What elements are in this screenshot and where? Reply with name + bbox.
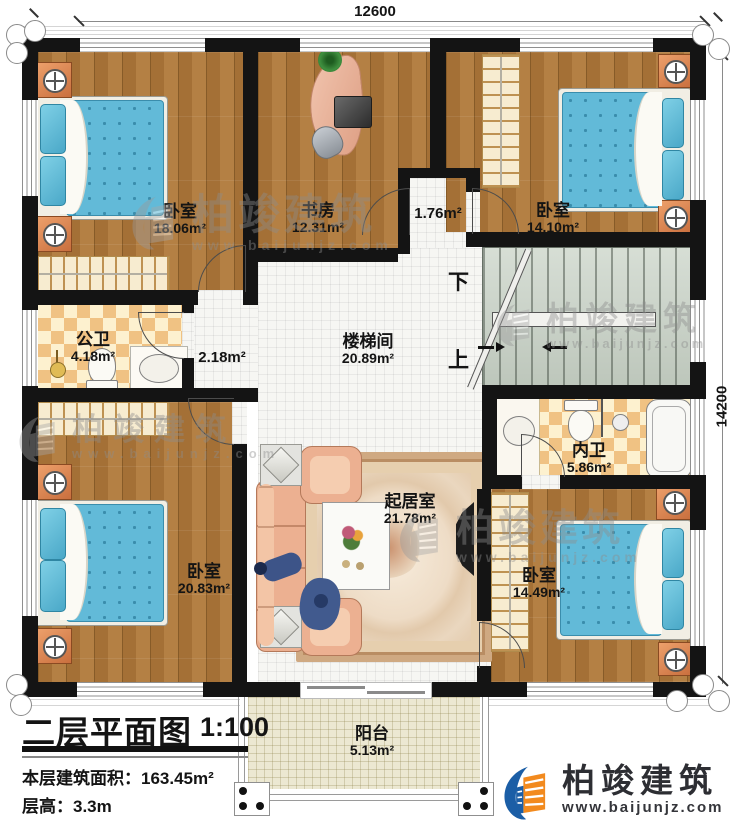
pillow	[662, 580, 684, 630]
floor-area-line: 本层建筑面积：163.45m²	[22, 764, 214, 789]
side-table-decor	[263, 447, 300, 484]
stairs-up-label: 上	[448, 344, 469, 374]
column-dot	[239, 787, 247, 795]
column-marker-left	[234, 782, 270, 816]
window	[300, 38, 430, 52]
room-area: 20.89m²	[308, 351, 428, 367]
room-name: 起居室	[350, 492, 470, 511]
room-label-balcony: 阳台 5.13m²	[312, 724, 432, 759]
axis-tick	[713, 12, 723, 22]
window	[22, 500, 38, 616]
wall-living-bedroombr	[477, 666, 491, 682]
room-name: 书房	[258, 201, 378, 220]
room-area: 4.18m²	[33, 349, 153, 365]
room-area: 5.86m²	[529, 460, 649, 476]
window	[520, 38, 653, 52]
blanket	[634, 524, 662, 634]
balcony-railing	[238, 794, 489, 795]
pillow	[40, 560, 66, 612]
drawing-scale: 1:100	[200, 712, 269, 743]
lamp-icon	[43, 471, 67, 495]
monitor-icon	[334, 96, 372, 128]
floor-area-value: 163.45m²	[141, 769, 214, 788]
column-dot	[480, 802, 488, 810]
room-label-hall-upper: 1.76m²	[378, 206, 498, 223]
dimension-top-line	[78, 21, 706, 22]
nightstand	[36, 464, 72, 500]
brand-text: 柏竣建筑 www.baijunjz.com	[562, 764, 723, 816]
stair-arrow-dash	[551, 346, 567, 349]
stair-arrow-dash	[478, 346, 494, 349]
lamp-icon	[43, 69, 67, 93]
wardrobe-bedroom-tr	[482, 54, 520, 188]
room-label-living-room: 起居室 21.78m²	[350, 492, 470, 527]
dimension-tick	[717, 675, 728, 686]
sill-line	[22, 26, 706, 27]
brand-url: www.baijunjz.com	[562, 799, 723, 816]
room-area: 14.49m²	[479, 585, 599, 601]
wall-below-bedroomtl	[22, 290, 198, 305]
room-name: 卧室	[144, 562, 264, 581]
lamp-icon	[664, 60, 688, 84]
axis-bubble	[6, 42, 28, 64]
room-label-stairwell: 楼梯间 20.89m²	[308, 332, 428, 367]
pillow	[40, 508, 66, 560]
room-area: 2.18m²	[162, 350, 282, 367]
wall-innerbath-bottom	[560, 475, 706, 489]
title-underline-thick	[22, 746, 248, 752]
title-underline-thin	[22, 756, 248, 758]
room-area: 20.83m²	[144, 581, 264, 597]
wall-innerbath-left	[482, 385, 497, 489]
balcony-railing	[238, 800, 489, 801]
brand-name: 柏竣建筑	[562, 764, 723, 799]
column-dot	[256, 802, 264, 810]
side-table-top	[260, 444, 302, 486]
dimension-right-label: 14200	[714, 382, 731, 432]
axis-bubble	[708, 690, 730, 712]
floor-plan: 12600 14200 下 上	[0, 0, 750, 833]
window	[77, 682, 203, 697]
stair-handrail	[492, 312, 656, 327]
nightstand	[36, 62, 72, 98]
armchair-seat	[310, 456, 350, 494]
eave-line	[10, 699, 240, 700]
room-area: 12.31m²	[258, 220, 378, 236]
column-dot	[480, 787, 488, 795]
wall-stairs-innerbath	[497, 385, 706, 399]
room-name: 卧室	[479, 566, 599, 585]
room-label-bedroom-tl: 卧室 18.06m²	[120, 202, 240, 237]
floor-area-label: 本层建筑面积：	[22, 769, 141, 788]
lamp-icon	[43, 223, 67, 247]
nightstand	[658, 200, 692, 234]
stair-arrow-head	[496, 342, 505, 352]
room-label-study: 书房 12.31m²	[258, 201, 378, 236]
pillow	[40, 104, 66, 154]
wall-study-bottom	[258, 248, 398, 262]
room-label-inner-bath: 内卫 5.86m²	[529, 441, 649, 476]
room-label-bedroom-bl: 卧室 20.83m²	[144, 562, 264, 597]
shower-pole	[601, 399, 603, 437]
sill-line	[22, 30, 706, 31]
column-dot	[463, 802, 471, 810]
window	[690, 100, 706, 200]
bathtub-inner	[652, 406, 686, 472]
pillow	[662, 150, 684, 200]
axis-bubble	[708, 38, 730, 60]
axis-bubble	[24, 20, 46, 42]
sill-line	[22, 34, 706, 35]
lamp-icon	[664, 206, 688, 230]
axis-bubble	[666, 690, 688, 712]
blanket	[634, 92, 662, 206]
column-marker-right	[458, 782, 494, 816]
lamp-icon	[43, 635, 67, 659]
lamp-icon	[663, 491, 687, 515]
room-label-bedroom-br: 卧室 14.49m²	[479, 566, 599, 601]
room-name: 卧室	[120, 202, 240, 221]
table-cups	[342, 560, 350, 568]
brand-logo-icon	[498, 764, 556, 822]
room-area: 21.78m²	[350, 511, 470, 527]
sliding-door-panel	[307, 686, 365, 689]
dimension-right-line	[722, 56, 723, 684]
axis-bubble	[6, 674, 28, 696]
wardrobe-bedroom-tl	[36, 256, 170, 292]
room-label-bedroom-tr: 卧室 14.10m²	[493, 201, 613, 236]
room-label-hall-mid: 2.18m²	[162, 350, 282, 367]
sliding-door-panel	[367, 691, 425, 694]
window	[690, 530, 706, 646]
room-area: 5.13m²	[312, 743, 432, 759]
room-name: 楼梯间	[308, 332, 428, 351]
floor-door-patch	[232, 398, 247, 444]
window	[690, 300, 706, 362]
wall-hall-top	[408, 168, 468, 178]
floor-height-value: 3.3m	[73, 797, 112, 816]
room-name: 公卫	[33, 330, 153, 349]
nightstand	[658, 642, 692, 676]
room-name: 卧室	[493, 201, 613, 220]
floor-height-label: 层高：	[22, 797, 73, 816]
window	[690, 399, 706, 475]
window	[22, 100, 38, 196]
toilet-inner	[568, 410, 594, 442]
nightstand	[36, 628, 72, 664]
floor-door-patch	[522, 475, 560, 489]
stairs-down-label: 下	[448, 266, 469, 296]
shower-head-icon	[612, 414, 629, 431]
person-head	[314, 594, 328, 608]
window	[527, 682, 653, 697]
nightstand	[36, 216, 72, 252]
wall-living-bedroombr	[477, 489, 491, 621]
pillow	[662, 528, 684, 578]
room-area: 1.76m²	[378, 206, 498, 223]
column-dot	[239, 802, 247, 810]
room-area: 18.06m²	[120, 221, 240, 237]
pillow	[662, 98, 684, 148]
room-name: 内卫	[529, 441, 649, 460]
dimension-top-label: 12600	[345, 3, 405, 20]
wall-bedroombl-right	[232, 388, 247, 400]
room-area: 14.10m²	[493, 220, 613, 236]
room-label-public-bath: 公卫 4.18m²	[33, 330, 153, 365]
nightstand	[658, 54, 692, 88]
brand-logo: 柏竣建筑 www.baijunjz.com	[498, 764, 723, 822]
wall-pier-top	[430, 52, 446, 168]
stair-arrow-head	[542, 342, 551, 352]
lamp-icon	[664, 648, 688, 672]
axis-tick	[29, 8, 39, 18]
sliding-door-balcony	[300, 682, 432, 699]
pillow	[40, 156, 66, 206]
wardrobe-bedroom-bl	[36, 402, 170, 436]
floor-height-line: 层高：3.3m	[22, 792, 112, 817]
wall-innerbath-bottom	[482, 475, 522, 489]
nightstand	[656, 484, 692, 520]
room-name: 阳台	[312, 724, 432, 743]
window	[80, 38, 205, 52]
